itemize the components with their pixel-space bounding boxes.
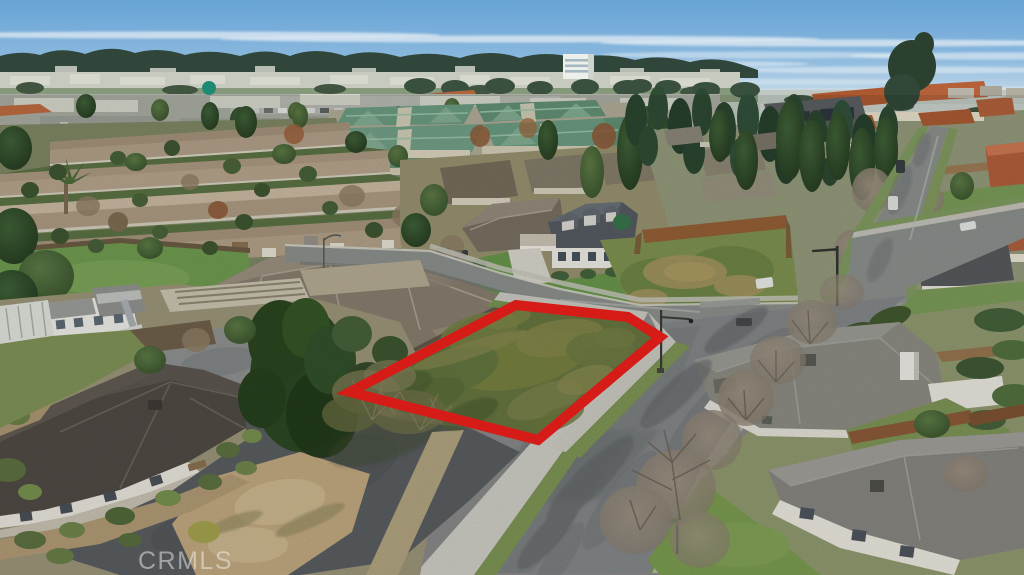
svg-text:CRMLS: CRMLS xyxy=(138,547,233,575)
